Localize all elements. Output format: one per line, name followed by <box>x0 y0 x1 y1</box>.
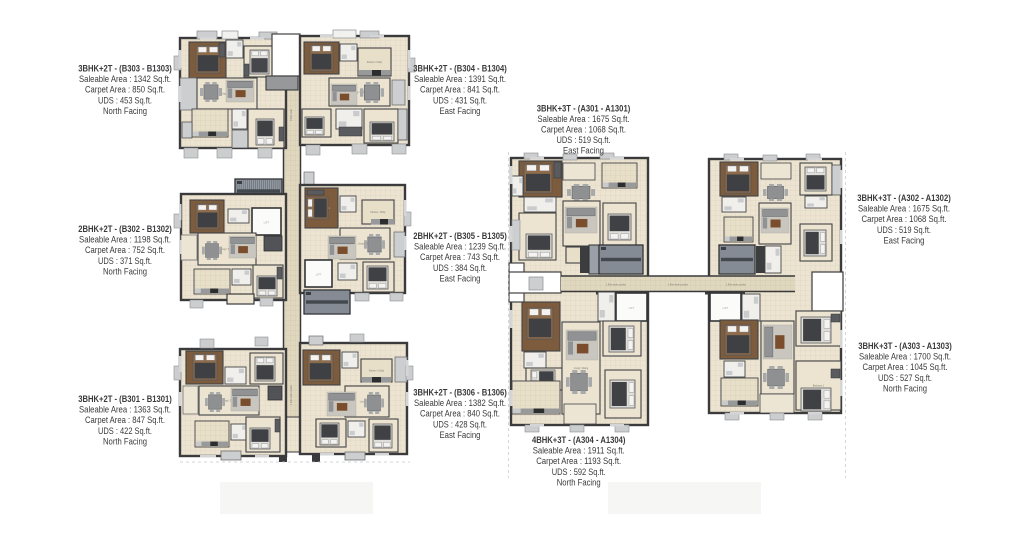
svg-text:3BHK+3T - (A303 - A1303): 3BHK+3T - (A303 - A1303) <box>858 341 952 352</box>
svg-text:UDS : 428 Sq.ft.: UDS : 428 Sq.ft. <box>433 419 487 429</box>
svg-text:3BHK+2T - (B303 - B1303): 3BHK+2T - (B303 - B1303) <box>78 64 172 75</box>
svg-text:2BHK+2T - (B305 - B1305): 2BHK+2T - (B305 - B1305) <box>413 231 507 242</box>
svg-text:3BHK+2T - (B301 - B1301): 3BHK+2T - (B301 - B1301) <box>78 394 172 405</box>
svg-text:1.90m wide corridor: 1.90m wide corridor <box>726 284 746 287</box>
svg-text:Carpet Area : 1068 Sq.ft.: Carpet Area : 1068 Sq.ft. <box>862 214 947 224</box>
svg-text:Kitchen / Utility: Kitchen / Utility <box>369 370 385 373</box>
svg-text:Carpet Area : 1045 Sq.ft.: Carpet Area : 1045 Sq.ft. <box>863 362 948 372</box>
svg-text:Carpet Area : 752 Sq.ft.: Carpet Area : 752 Sq.ft. <box>85 245 165 255</box>
svg-text:UDS : 384 Sq.ft.: UDS : 384 Sq.ft. <box>433 263 487 273</box>
svg-text:East Facing: East Facing <box>884 235 925 245</box>
svg-text:UDS : 519 Sq.ft.: UDS : 519 Sq.ft. <box>877 225 931 235</box>
svg-text:2BHK+2T - (B302 - B1302): 2BHK+2T - (B302 - B1302) <box>78 224 172 235</box>
svg-text:UDS : 371 Sq.ft.: UDS : 371 Sq.ft. <box>98 256 152 266</box>
svg-text:Carpet Area : 840 Sq.ft.: Carpet Area : 840 Sq.ft. <box>420 409 500 419</box>
svg-text:UDS : 527 Sq.ft.: UDS : 527 Sq.ft. <box>878 373 932 383</box>
svg-text:3BHK+2T - (B304 - B1304): 3BHK+2T - (B304 - B1304) <box>413 64 507 75</box>
svg-text:3BHK+3T - (A301 - A1301): 3BHK+3T - (A301 - A1301) <box>537 103 631 114</box>
svg-text:Saleable Area : 1911 Sq.ft.: Saleable Area : 1911 Sq.ft. <box>533 446 625 456</box>
svg-text:North Facing: North Facing <box>103 106 147 116</box>
svg-text:Carpet Area : 841 Sq.ft.: Carpet Area : 841 Sq.ft. <box>420 85 500 95</box>
svg-text:Carpet Area : 1068 Sq.ft.: Carpet Area : 1068 Sq.ft. <box>541 125 626 135</box>
svg-text:Saleable Area : 1675 Sq.ft.: Saleable Area : 1675 Sq.ft. <box>538 114 630 124</box>
svg-text:Saleable Area : 1675 Sq.ft.: Saleable Area : 1675 Sq.ft. <box>858 204 950 214</box>
svg-text:3BHK+2T - (B306 - B1306): 3BHK+2T - (B306 - B1306) <box>413 388 507 399</box>
svg-text:North Facing: North Facing <box>103 266 147 276</box>
svg-text:UDS : 422 Sq.ft.: UDS : 422 Sq.ft. <box>98 426 152 436</box>
svg-text:East Facing: East Facing <box>440 106 481 116</box>
svg-text:Saleable Area : 1363 Sq.ft.: Saleable Area : 1363 Sq.ft. <box>79 405 171 415</box>
svg-text:East Facing: East Facing <box>563 146 604 156</box>
svg-text:Bedroom 1: Bedroom 1 <box>813 385 825 388</box>
svg-text:Saleable Area : 1198 Sq.ft.: Saleable Area : 1198 Sq.ft. <box>79 235 171 245</box>
svg-text:East Facing: East Facing <box>440 430 481 440</box>
svg-text:4BHK+3T - (A304 - A1304): 4BHK+3T - (A304 - A1304) <box>532 435 626 446</box>
svg-text:1.90m wide corridor: 1.90m wide corridor <box>606 284 626 287</box>
svg-text:North Facing: North Facing <box>883 383 927 393</box>
svg-text:2.40m wide corridor: 2.40m wide corridor <box>668 284 688 287</box>
svg-text:North Facing: North Facing <box>557 477 601 487</box>
svg-text:1.90m wide corridor: 1.90m wide corridor <box>290 385 293 405</box>
svg-text:Carpet Area : 1193 Sq.ft.: Carpet Area : 1193 Sq.ft. <box>536 456 621 466</box>
svg-text:Kitchen / Utility: Kitchen / Utility <box>370 211 386 214</box>
svg-text:East Facing: East Facing <box>440 273 481 283</box>
svg-text:Kitchen / Utility: Kitchen / Utility <box>367 61 383 64</box>
svg-text:Carpet Area : 847 Sq.ft.: Carpet Area : 847 Sq.ft. <box>85 415 165 425</box>
svg-text:Carpet Area : 850 Sq.ft.: Carpet Area : 850 Sq.ft. <box>85 85 165 95</box>
svg-text:UDS : 592 Sq.ft.: UDS : 592 Sq.ft. <box>552 467 606 477</box>
svg-text:Saleable Area : 1342 Sq.ft.: Saleable Area : 1342 Sq.ft. <box>79 74 171 84</box>
svg-text:UDS : 519 Sq.ft.: UDS : 519 Sq.ft. <box>557 135 611 145</box>
svg-text:LIFT: LIFT <box>629 306 635 310</box>
svg-text:LIFT: LIFT <box>264 221 270 225</box>
svg-text:Carpet Area : 743 Sq.ft.: Carpet Area : 743 Sq.ft. <box>420 252 500 262</box>
svg-text:UDS : 431 Sq.ft.: UDS : 431 Sq.ft. <box>433 95 487 105</box>
svg-text:LIFT: LIFT <box>316 273 322 277</box>
svg-text:Saleable Area : 1382 Sq.ft.: Saleable Area : 1382 Sq.ft. <box>414 398 506 408</box>
svg-text:3BHK+3T - (A302 - A1302): 3BHK+3T - (A302 - A1302) <box>857 193 951 204</box>
svg-text:Saleable Area : 1391 Sq.ft.: Saleable Area : 1391 Sq.ft. <box>414 74 506 84</box>
svg-text:LIFT: LIFT <box>723 306 729 310</box>
svg-text:2.40m wide: 2.40m wide <box>291 108 293 120</box>
svg-text:UDS : 453 Sq.ft.: UDS : 453 Sq.ft. <box>98 95 152 105</box>
svg-text:Saleable Area : 1239 Sq.ft.: Saleable Area : 1239 Sq.ft. <box>414 242 506 252</box>
svg-text:Saleable Area : 1700 Sq.ft.: Saleable Area : 1700 Sq.ft. <box>859 352 951 362</box>
svg-text:North Facing: North Facing <box>103 436 147 446</box>
svg-text:Living / Dining: Living / Dining <box>574 368 589 370</box>
